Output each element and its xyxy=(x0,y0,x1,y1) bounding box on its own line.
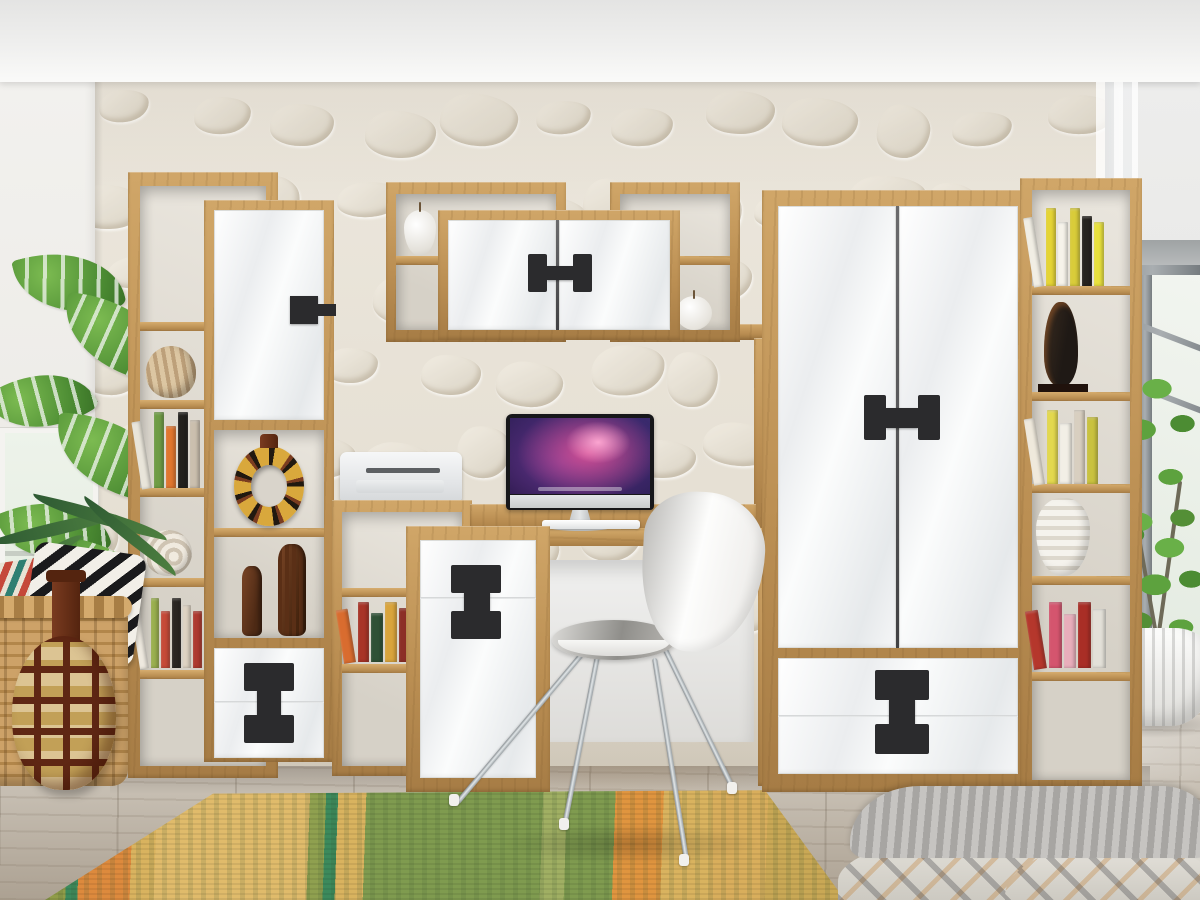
stone xyxy=(874,102,932,160)
striped-pot xyxy=(146,346,196,398)
book-spine xyxy=(172,598,181,668)
book-spine xyxy=(161,611,170,668)
book-spine xyxy=(1064,614,1077,668)
stone xyxy=(495,360,565,410)
stone xyxy=(438,91,520,150)
stone xyxy=(589,341,669,400)
chair-foot-cap xyxy=(727,782,737,794)
room-scene xyxy=(0,0,1200,900)
stone xyxy=(951,109,1014,148)
drawer-handle xyxy=(257,690,281,716)
book-spine xyxy=(358,602,370,662)
book-row xyxy=(142,412,200,488)
floor-vase-body xyxy=(12,636,116,790)
shelf-board xyxy=(1032,576,1130,585)
chair-foot-cap xyxy=(559,818,569,830)
book-spine xyxy=(1082,216,1092,286)
stone xyxy=(781,96,859,148)
pear-stem xyxy=(419,202,421,212)
book-spine xyxy=(178,412,188,488)
chair-shadow xyxy=(500,824,760,864)
sculpture-base xyxy=(1038,384,1088,392)
imac-dock xyxy=(538,487,622,491)
dumbbell-handle xyxy=(547,266,573,280)
knit-blanket xyxy=(850,786,1200,858)
apple-stem xyxy=(693,290,695,299)
book-spine xyxy=(1087,417,1098,484)
shelf-board xyxy=(1032,286,1130,295)
abstract-sculpture xyxy=(1044,302,1078,386)
stone xyxy=(534,98,592,137)
stone xyxy=(610,106,674,147)
shelf-board xyxy=(214,528,324,537)
book-row xyxy=(1034,602,1106,668)
book-spine xyxy=(1070,208,1080,286)
floor-vase-lip xyxy=(46,570,86,582)
book-spine xyxy=(1078,602,1091,668)
book-spine xyxy=(1047,410,1058,484)
shelf-board xyxy=(1032,484,1130,493)
imac-chin xyxy=(510,495,650,508)
book-spine xyxy=(371,613,383,662)
stone xyxy=(455,424,513,481)
keyboard xyxy=(542,520,640,529)
stone xyxy=(665,350,720,408)
stone xyxy=(706,91,775,134)
shelf-board xyxy=(1032,672,1130,681)
drawer-handle-large xyxy=(889,699,915,725)
ceramic-apple xyxy=(676,296,712,330)
printer-tray xyxy=(356,480,444,493)
book-spine xyxy=(1094,222,1104,286)
book-row xyxy=(1034,410,1098,484)
tribal-figurine xyxy=(242,566,262,636)
printer-slot xyxy=(366,468,440,473)
book-spine xyxy=(193,611,202,668)
shelf-board xyxy=(1032,392,1130,401)
book-spine xyxy=(385,602,397,662)
imac-display xyxy=(510,418,650,494)
stone xyxy=(269,103,334,146)
stone xyxy=(420,354,481,395)
chair-foot-cap xyxy=(449,794,459,806)
book-spine xyxy=(166,426,176,488)
book-spine xyxy=(183,605,192,668)
stone xyxy=(193,95,252,136)
book-spine xyxy=(1074,410,1085,484)
ring-vase-neck xyxy=(260,434,278,448)
ceiling-soffit xyxy=(0,0,1200,82)
stone xyxy=(364,110,437,159)
tribal-figurine xyxy=(278,544,306,636)
book-spine xyxy=(1058,222,1068,286)
chair-foot-cap xyxy=(679,854,689,866)
stone xyxy=(97,87,151,125)
ring-vase xyxy=(234,446,304,526)
book-spine xyxy=(1046,208,1056,286)
book-spine xyxy=(1093,609,1106,668)
book-spine xyxy=(1060,423,1071,484)
book-spine xyxy=(151,598,160,668)
book-spine xyxy=(154,412,164,488)
dumbbell-handle-large xyxy=(886,408,918,428)
door-handle xyxy=(290,296,318,324)
book-row xyxy=(1034,208,1104,286)
book-spine xyxy=(1049,602,1062,668)
printer xyxy=(340,452,462,504)
cabinet-handle xyxy=(464,592,490,612)
imac xyxy=(506,414,654,510)
book-row xyxy=(140,598,202,668)
book-spine xyxy=(190,420,200,488)
